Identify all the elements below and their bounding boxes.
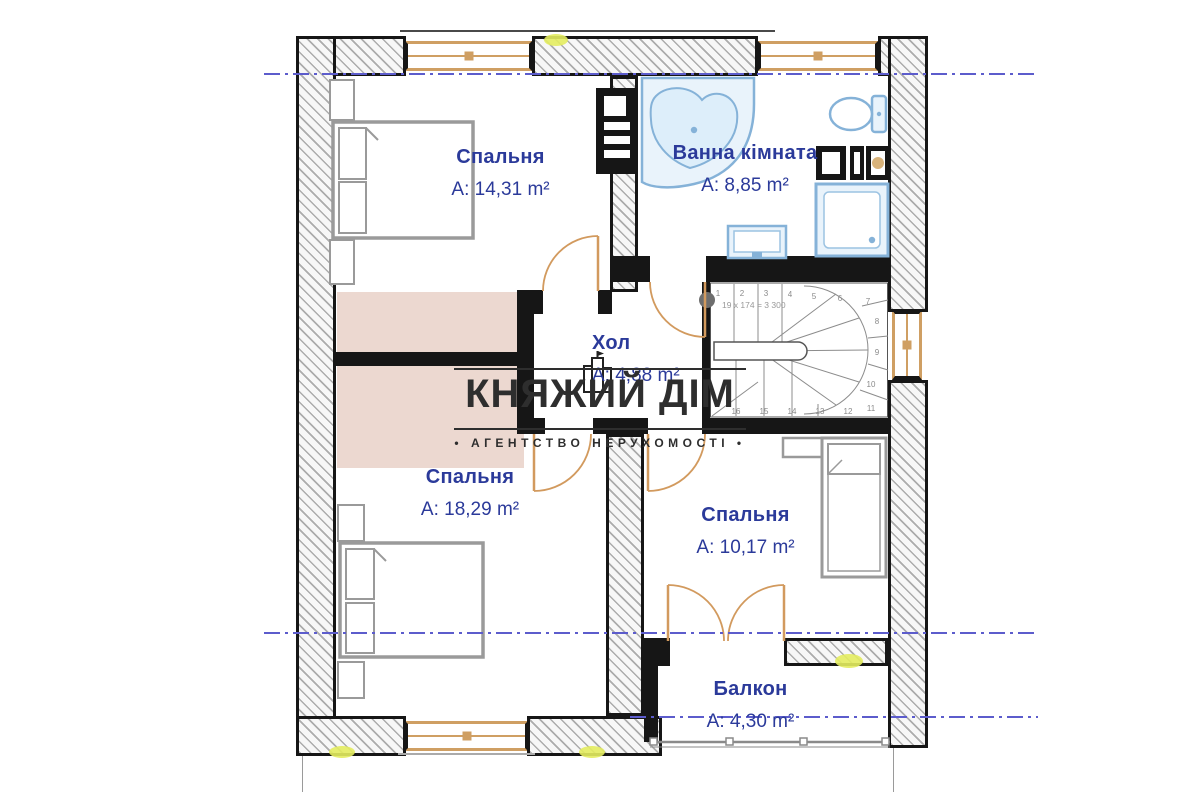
axis-vertical-right bbox=[893, 748, 894, 792]
step-number: 14 bbox=[788, 407, 797, 416]
wall-hall-bottom-b bbox=[593, 418, 648, 434]
step-number: 8 bbox=[875, 317, 880, 326]
balcony-railing bbox=[650, 738, 890, 747]
step-number: 3 bbox=[764, 289, 769, 298]
wall-bath-bottom-right bbox=[706, 256, 888, 282]
window-mullion bbox=[462, 732, 471, 741]
window-mullion bbox=[903, 341, 912, 350]
watermark-rule-bottom bbox=[454, 428, 746, 430]
wall-bottom-b bbox=[527, 716, 662, 756]
axis-dashed-top bbox=[264, 73, 1038, 75]
step-number: 13 bbox=[816, 407, 825, 416]
step-number: 10 bbox=[867, 380, 876, 389]
wall-stairs-bottom bbox=[706, 418, 888, 434]
eaves-line bbox=[400, 30, 775, 32]
room-name: Ванна кімната bbox=[650, 142, 840, 164]
wall-right-lower bbox=[888, 380, 928, 748]
floor-plan-canvas: 1 2 3 4 5 6 7 8 9 10 11 12 13 14 15 16 1… bbox=[0, 0, 1200, 794]
window-bottom bbox=[405, 721, 528, 751]
step-number: 2 bbox=[740, 289, 745, 298]
room-area: A: 18,29 m² bbox=[395, 499, 545, 520]
step-number: 5 bbox=[812, 292, 817, 301]
wall-left bbox=[296, 36, 336, 756]
watermark-brand: КНЯЖИЙ ДІМ bbox=[440, 372, 760, 417]
room-area: A: 8,85 m² bbox=[650, 175, 840, 196]
wall-bedroom2-bedroom3 bbox=[606, 434, 644, 716]
room-name: Балкон bbox=[688, 678, 813, 700]
room-area: A: 4,30 m² bbox=[688, 711, 813, 732]
wall-hall-top-b bbox=[598, 290, 612, 314]
wardrobe-strip-top bbox=[337, 292, 517, 352]
step-number: 4 bbox=[788, 290, 793, 299]
door-bathroom bbox=[650, 282, 705, 337]
window-top-left bbox=[405, 41, 532, 71]
window-mullion bbox=[464, 52, 473, 61]
door-bedroom-top-left bbox=[543, 236, 598, 291]
window-top-right bbox=[758, 41, 878, 71]
step-number: 11 bbox=[867, 404, 876, 413]
room-label-bedroom-top-left: Спальня A: 14,31 m² bbox=[418, 146, 583, 201]
wall-right-upper bbox=[888, 36, 928, 312]
room-label-balcony: Балкон A: 4,30 m² bbox=[688, 678, 813, 733]
room-name: Спальня bbox=[418, 146, 583, 168]
room-name: Спальня bbox=[678, 504, 813, 526]
axis-dashed-middle bbox=[264, 632, 1038, 634]
window-stairs-right bbox=[892, 310, 922, 380]
step-number: 7 bbox=[866, 297, 871, 306]
step-number: 1 bbox=[716, 289, 721, 298]
step-number: 15 bbox=[760, 407, 769, 416]
step-number: 12 bbox=[844, 407, 853, 416]
wall-balcony-jamb bbox=[644, 638, 670, 666]
room-area: A: 10,17 m² bbox=[678, 537, 813, 558]
wall-bedroom1-bedroom2 bbox=[336, 352, 524, 366]
step-number: 6 bbox=[838, 294, 843, 303]
room-name: Хол bbox=[592, 332, 752, 354]
watermark-tagline: • АГЕНТСТВО НЕРУХОМОСТІ • bbox=[400, 436, 800, 450]
stairs-formula: 19 x 174 = 3 300 bbox=[722, 300, 786, 310]
step-number: 9 bbox=[875, 348, 880, 357]
watermark-rule-top bbox=[454, 368, 746, 370]
wall-hall-bottom-a bbox=[517, 418, 545, 434]
window-mullion bbox=[814, 52, 823, 61]
room-name: Спальня bbox=[395, 466, 545, 488]
wall-bottom-a bbox=[296, 716, 406, 756]
room-label-bedroom-bottom-left: Спальня A: 18,29 m² bbox=[395, 466, 545, 521]
wall-top-b bbox=[532, 36, 758, 76]
double-bed-bottom bbox=[338, 505, 483, 698]
room-label-bedroom-bottom-right: Спальня A: 10,17 m² bbox=[678, 504, 813, 559]
wall-bath-bottom-left bbox=[610, 256, 650, 282]
sink-icon bbox=[728, 226, 786, 258]
room-label-bathroom: Ванна кімната A: 8,85 m² bbox=[650, 142, 840, 197]
room-area: A: 14,31 m² bbox=[418, 179, 583, 200]
toilet-icon bbox=[830, 96, 886, 132]
wall-balcony-right bbox=[784, 638, 888, 666]
